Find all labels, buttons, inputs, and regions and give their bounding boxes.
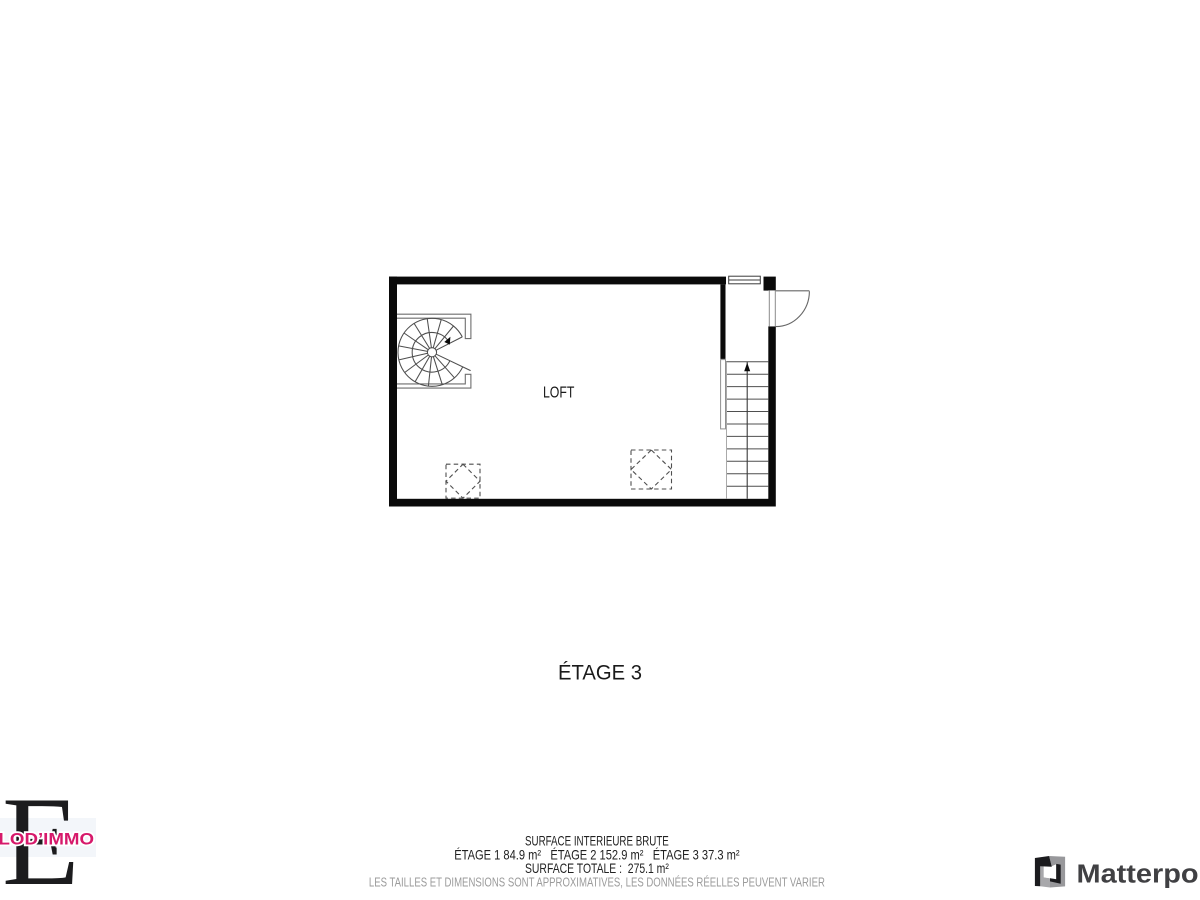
svg-text:Matterport: Matterport: [1077, 861, 1200, 889]
svg-text:SURFACE INTERIEURE BRUTE: SURFACE INTERIEURE BRUTE: [525, 834, 669, 849]
svg-text:LOD’IMMO: LOD’IMMO: [0, 830, 94, 849]
svg-text:ÉTAGE 3: ÉTAGE 3: [558, 660, 642, 685]
svg-text:LES TAILLES ET DIMENSIONS SONT: LES TAILLES ET DIMENSIONS SONT APPROXIMA…: [369, 875, 825, 890]
svg-text:LOFT: LOFT: [543, 384, 575, 401]
